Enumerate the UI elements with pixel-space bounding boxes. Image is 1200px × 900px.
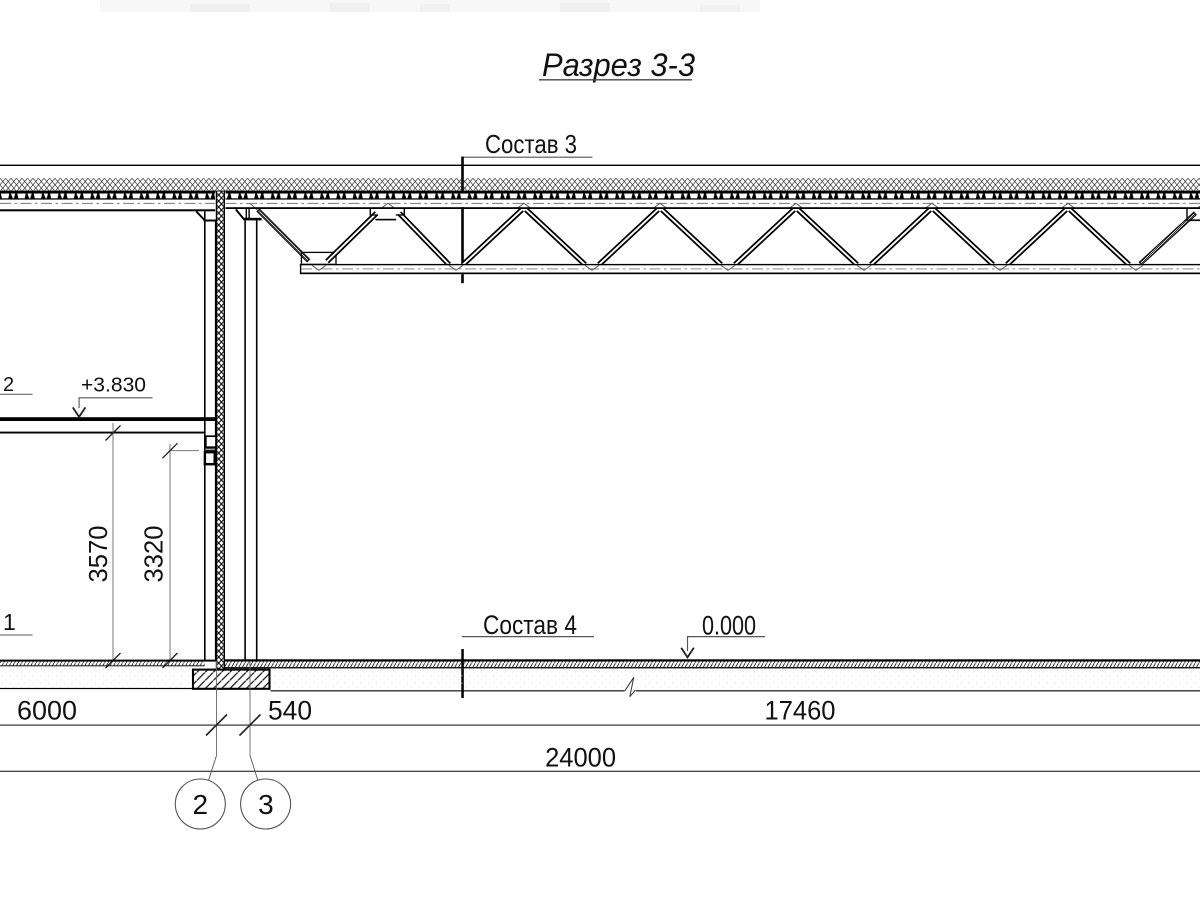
svg-text:Состав 4: Состав 4 — [483, 610, 577, 640]
svg-text:6000: 6000 — [17, 696, 77, 726]
svg-text:3: 3 — [258, 789, 274, 820]
svg-text:2: 2 — [193, 789, 209, 820]
svg-text:3320: 3320 — [139, 526, 169, 583]
svg-text:0.000: 0.000 — [702, 610, 756, 640]
svg-text:17460: 17460 — [765, 696, 836, 726]
svg-text:+3.830: +3.830 — [81, 375, 146, 397]
svg-text:1: 1 — [3, 609, 16, 635]
svg-text:540: 540 — [268, 696, 312, 726]
svg-text:Состав 3: Состав 3 — [485, 129, 577, 159]
svg-text:3570: 3570 — [83, 526, 113, 583]
svg-text:2: 2 — [3, 374, 14, 396]
svg-text:24000: 24000 — [545, 743, 616, 773]
svg-text:Разрез 3-3: Разрез 3-3 — [542, 47, 695, 83]
